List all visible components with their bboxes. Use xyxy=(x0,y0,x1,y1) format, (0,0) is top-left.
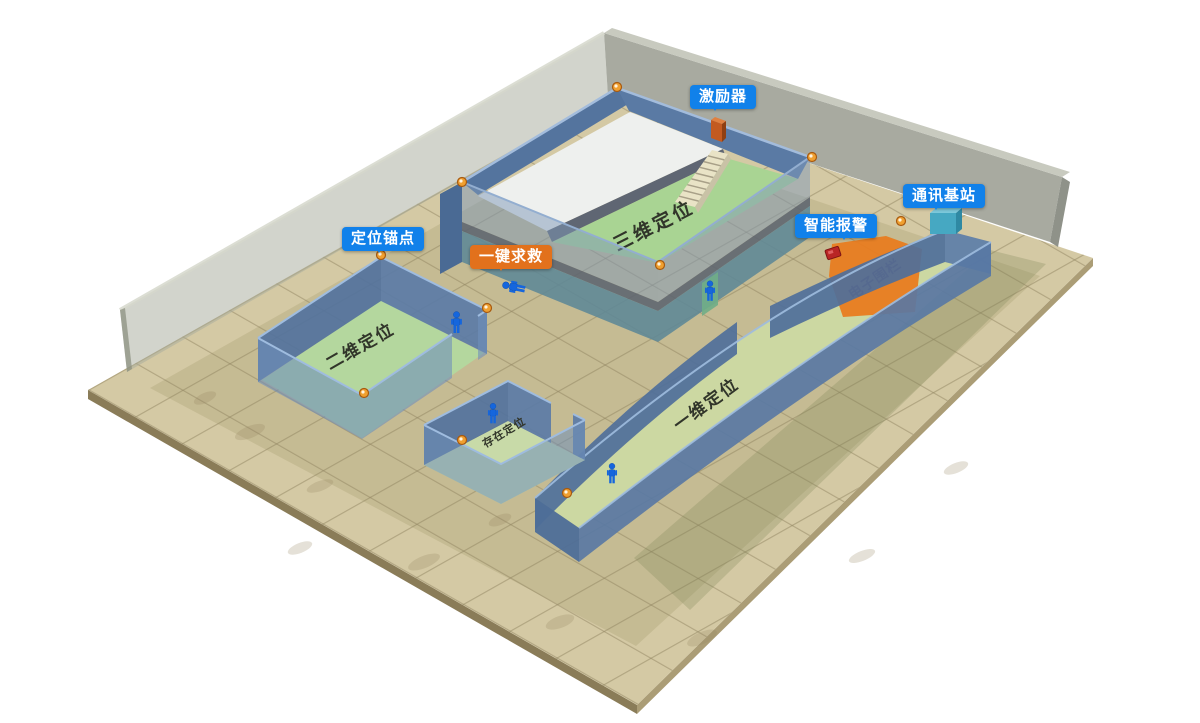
callout-smart-alarm-text: 智能报警 xyxy=(804,217,868,234)
callout-sos[interactable]: 一键求救 xyxy=(470,245,552,269)
building-wall-endcap xyxy=(440,182,462,274)
anchor-dot[interactable] xyxy=(656,261,665,270)
callout-tail xyxy=(710,103,720,116)
callout-exciter[interactable]: 激励器 xyxy=(690,85,756,109)
anchor-dot[interactable] xyxy=(360,389,369,398)
callout-smart-alarm[interactable]: 智能报警 xyxy=(795,214,877,238)
anchor-dot[interactable] xyxy=(483,304,492,313)
anchor-dot[interactable] xyxy=(808,153,817,162)
callout-base-station-text: 通讯基站 xyxy=(912,187,976,204)
callout-tail xyxy=(839,232,849,245)
anchor-dot[interactable] xyxy=(613,83,622,92)
anchor-dot[interactable] xyxy=(563,489,572,498)
exciter-device[interactable] xyxy=(711,117,726,142)
anchor-dot[interactable] xyxy=(897,217,906,226)
callout-anchor-point[interactable]: 定位锚点 xyxy=(342,227,424,251)
callout-tail xyxy=(496,263,506,276)
scene-canvas: 三维定位 电子围栏 一维定位 xyxy=(0,0,1200,723)
room2d-wall-door-stub xyxy=(478,310,487,360)
callout-base-station[interactable]: 通讯基站 xyxy=(903,184,985,208)
callout-tail xyxy=(931,202,941,215)
anchor-dot[interactable] xyxy=(458,436,467,445)
positioning-scene: 三维定位 电子围栏 一维定位 xyxy=(0,0,1200,723)
callout-exciter-text: 激励器 xyxy=(699,88,747,105)
callout-tail xyxy=(374,245,384,258)
callout-sos-text: 一键求救 xyxy=(479,248,543,265)
anchor-dot[interactable] xyxy=(458,178,467,187)
